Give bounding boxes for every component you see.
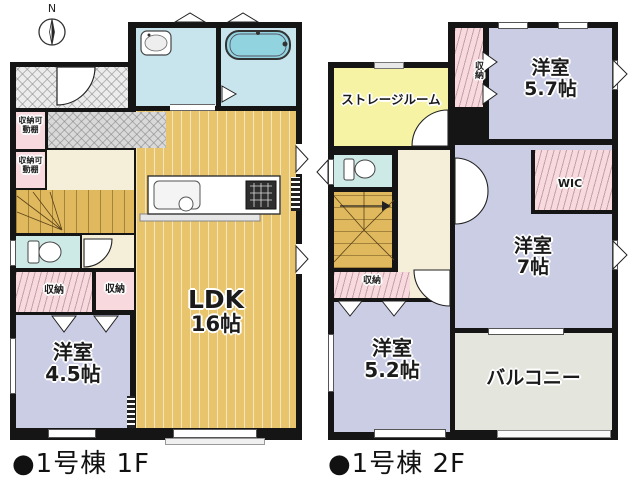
f2-western7-size: 7帖 bbox=[470, 257, 596, 278]
f2-western57-window-top-1 bbox=[498, 22, 528, 29]
f1-western-window-bottom bbox=[48, 429, 96, 438]
f1-ldk-label: LDK 16帖 bbox=[146, 286, 286, 336]
f2-western7-label: 洋室 7帖 bbox=[470, 236, 596, 277]
f1-closet-shelf-upper-label: 収納可動棚 bbox=[15, 117, 46, 134]
f1-hall bbox=[47, 150, 134, 190]
f1-ldk-door-gap-lower bbox=[296, 244, 302, 274]
f1-window-sill bbox=[165, 438, 265, 445]
f1-ldk-name: LDK bbox=[146, 286, 286, 313]
f2-stairs bbox=[334, 192, 392, 268]
floorplan-canvas: N bbox=[0, 0, 630, 480]
f2-western57-label: 洋室 5.7帖 bbox=[489, 58, 612, 99]
f2-western52-name: 洋室 bbox=[334, 338, 450, 360]
f1-ldk-door-gap-upper bbox=[296, 144, 302, 174]
f2-caption: ●1号棟 2F bbox=[328, 443, 466, 480]
f2-storage-window-top bbox=[374, 62, 404, 69]
f2-western52-size: 5.2帖 bbox=[334, 360, 450, 382]
f1-entrance-porch bbox=[16, 67, 128, 108]
f2-closet-top-label: 収納 bbox=[458, 48, 482, 92]
f2-western57-name: 洋室 bbox=[489, 58, 612, 79]
f1-western-name: 洋室 bbox=[16, 342, 130, 364]
f1-caption: ●1号棟 1F bbox=[12, 443, 150, 480]
f2-western57-window-top-2 bbox=[558, 22, 588, 29]
f2-western57-window-right bbox=[612, 60, 618, 90]
f2-western52-label: 洋室 5.2帖 bbox=[334, 338, 450, 381]
f2-western7-window-right bbox=[612, 240, 618, 270]
f2-wic-label: WIC bbox=[535, 178, 605, 190]
f1-ldk-size: 16帖 bbox=[146, 313, 286, 336]
f1-western-label: 洋室 4.5帖 bbox=[16, 342, 130, 385]
f1-wall-hatch-marker bbox=[291, 177, 300, 211]
f1-toilet-hall bbox=[82, 235, 134, 268]
f1-western-size: 4.5帖 bbox=[16, 364, 130, 386]
f1-toilet-room bbox=[16, 236, 80, 268]
f1-washroom bbox=[136, 28, 216, 106]
f1-stairs bbox=[16, 190, 134, 233]
f1-room-ldk bbox=[136, 111, 296, 428]
f1-washroom-sliding-door bbox=[170, 104, 215, 111]
f2-balcony-rail bbox=[497, 430, 611, 438]
f1-closet-left-label: 収納 bbox=[16, 286, 92, 297]
f1-ldk-window-bottom bbox=[173, 429, 257, 438]
f2-western7-name: 洋室 bbox=[470, 236, 596, 257]
f1-closet-shelf-lower-label: 収納可動棚 bbox=[15, 157, 46, 174]
f2-balcony-sliding-door bbox=[488, 328, 564, 335]
f2-balcony-label: バルコニー bbox=[455, 368, 612, 389]
f1-toilet-window-left bbox=[10, 240, 16, 266]
f1-entrance-hall-tile bbox=[48, 112, 166, 148]
f1-window-casement-markers-top bbox=[175, 13, 258, 22]
f2-storage-room bbox=[334, 68, 448, 146]
f1-bathroom bbox=[221, 28, 296, 106]
f1-closet-right-label: 収納 bbox=[96, 285, 134, 296]
f1-wall-hatch-marker-2 bbox=[127, 396, 135, 428]
f2-toilet-window-left bbox=[328, 159, 334, 185]
f2-toilet-room bbox=[334, 155, 392, 187]
compass-icon bbox=[34, 14, 70, 50]
f2-western52-window-bottom bbox=[374, 429, 446, 438]
f2-storage-room-label: ストレージルーム bbox=[334, 93, 448, 107]
f2-closet-hall-label: 収納 bbox=[334, 277, 410, 287]
f2-western57-size: 5.7帖 bbox=[489, 79, 612, 100]
